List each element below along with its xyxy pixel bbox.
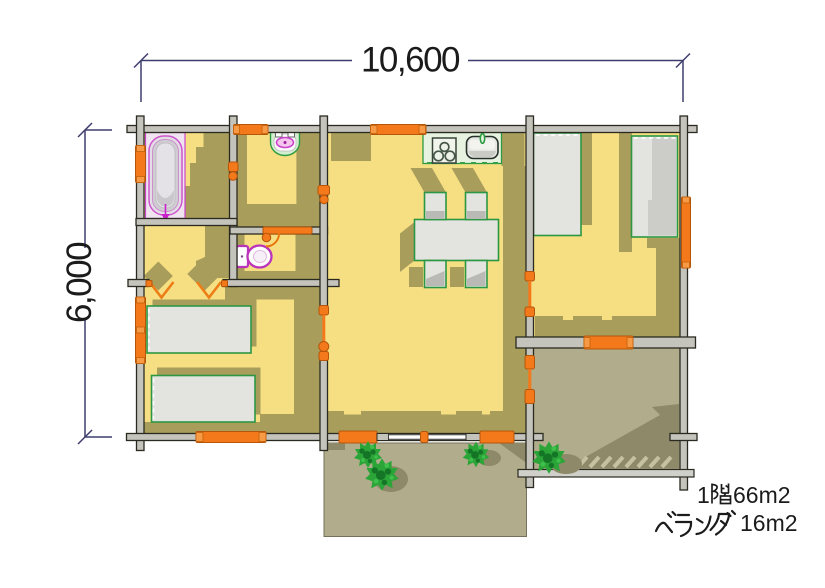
- svg-text:10,600: 10,600: [361, 41, 460, 80]
- svg-text:1: 1: [697, 482, 710, 508]
- svg-text:16m2: 16m2: [740, 510, 798, 536]
- svg-text:6,000: 6,000: [60, 242, 99, 323]
- svg-text:66m2: 66m2: [733, 482, 791, 508]
